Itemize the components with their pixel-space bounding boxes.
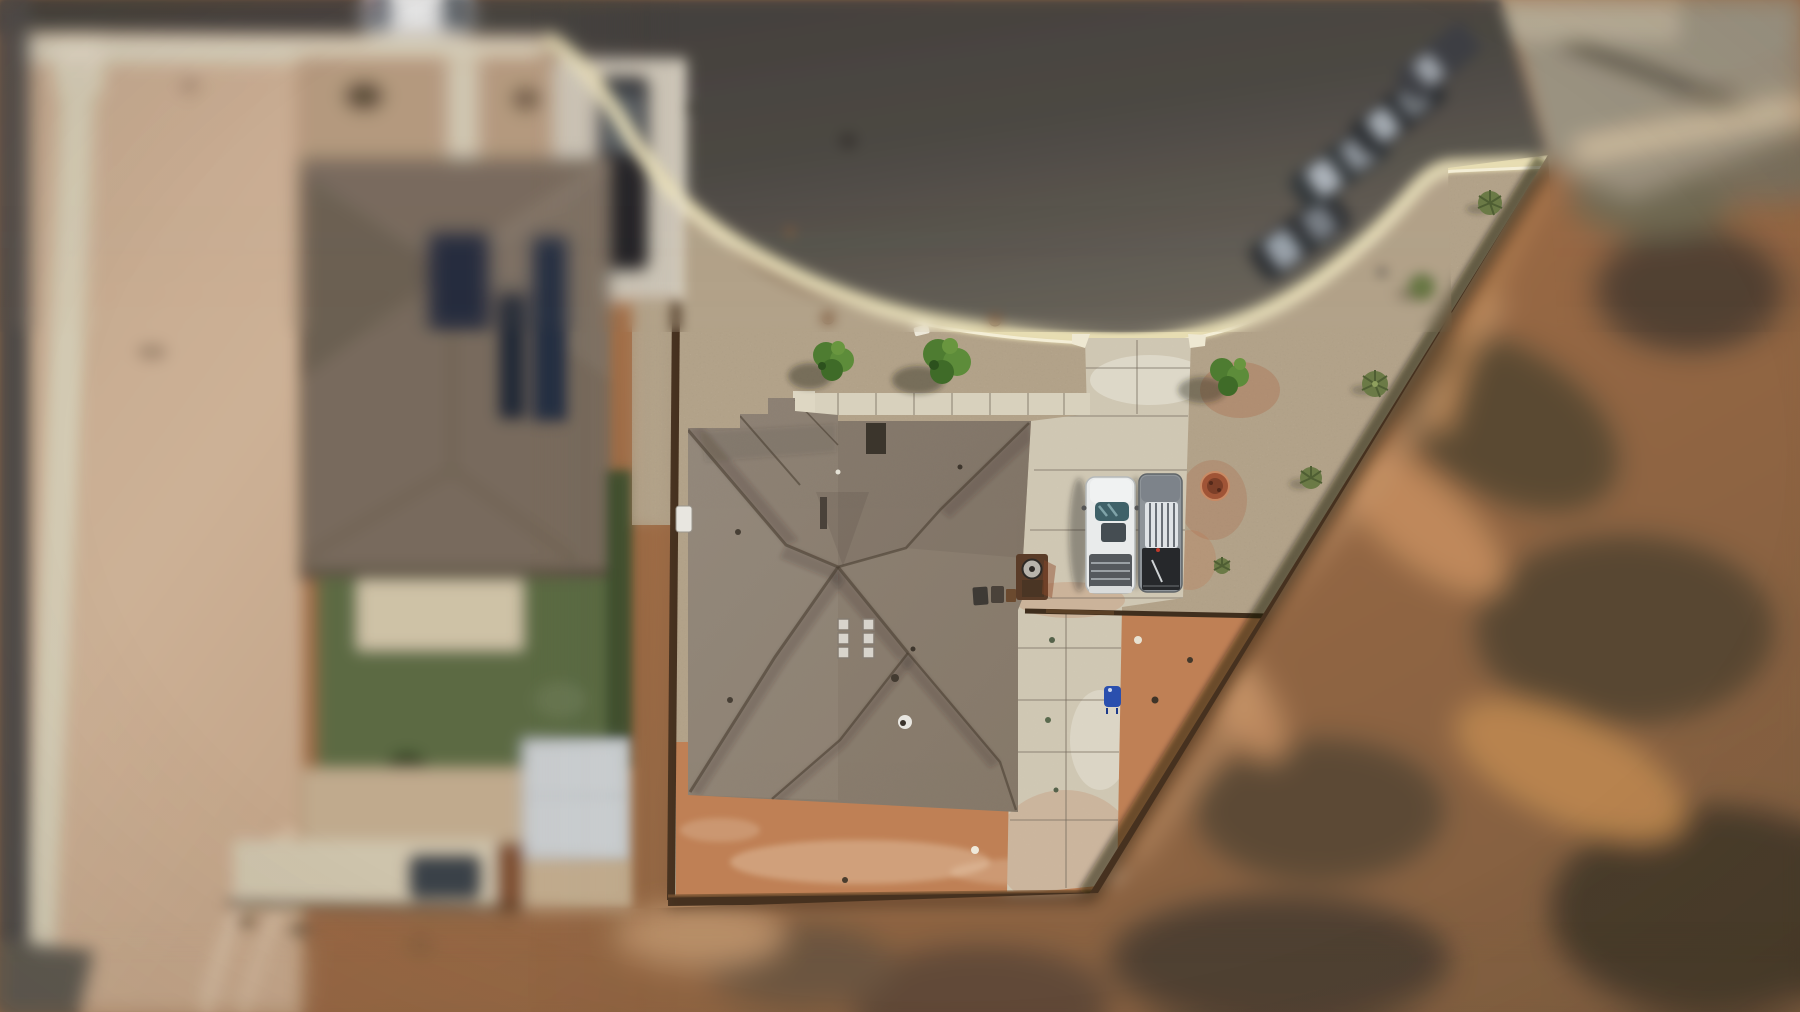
neighbor-shed bbox=[523, 740, 628, 858]
front-sidewalk bbox=[793, 391, 1090, 417]
white-truck-tailgate bbox=[1089, 586, 1132, 593]
left-road-strip bbox=[0, 0, 30, 1012]
gray-pickup-truck bbox=[1139, 474, 1182, 592]
white-truck-sunroof bbox=[1101, 523, 1126, 542]
vent-dot-3 bbox=[836, 470, 841, 475]
debris-white-2 bbox=[1134, 636, 1142, 644]
rock-3 bbox=[785, 227, 795, 237]
neighbor-patio bbox=[357, 580, 523, 650]
neighbor-front-shrub-1 bbox=[345, 83, 383, 109]
roof-slit-shadow bbox=[820, 497, 827, 529]
trash-bin-1 bbox=[972, 586, 988, 605]
rock-2 bbox=[989, 314, 1001, 326]
bottom-mark-1 bbox=[290, 925, 310, 935]
white-truck-hood bbox=[1090, 479, 1132, 503]
fire-pit-ring bbox=[1201, 472, 1229, 500]
solar-panel-2 bbox=[498, 292, 526, 420]
lot-shrub bbox=[183, 81, 197, 91]
aerial-photo bbox=[0, 0, 1800, 1012]
left-fence bbox=[671, 302, 676, 900]
rust-fence-strip bbox=[497, 843, 523, 912]
neighbor-house-roof bbox=[300, 158, 610, 580]
neighbor-front-shrub-2 bbox=[513, 89, 539, 109]
dark-dot-5 bbox=[958, 465, 963, 470]
lot-mark bbox=[137, 344, 167, 360]
debris-dark-2 bbox=[1187, 657, 1193, 663]
dark-dot-2 bbox=[911, 647, 916, 652]
hedge-strip bbox=[606, 470, 632, 750]
solar-panel-1 bbox=[428, 232, 490, 330]
debris-dark-1 bbox=[1152, 697, 1159, 704]
meter-pole bbox=[686, 104, 694, 112]
trash-bin-2 bbox=[991, 586, 1004, 603]
vehicles-driveway bbox=[1069, 474, 1182, 593]
dark-dot-3 bbox=[735, 529, 741, 535]
bottom-left-gray-patch bbox=[0, 940, 95, 1012]
neighbor-parked-car-2 bbox=[408, 854, 482, 900]
neighbor-front-dirt bbox=[298, 58, 556, 162]
main-house-roof bbox=[676, 390, 1060, 820]
bottom-mark-2 bbox=[412, 940, 428, 950]
side-utility-box bbox=[676, 506, 692, 532]
sand-streak-3 bbox=[680, 818, 760, 842]
roof-notch-shadow bbox=[866, 423, 886, 454]
pad-weed-3 bbox=[1054, 788, 1059, 793]
brown-box bbox=[1006, 589, 1016, 602]
debris-dark-3 bbox=[842, 877, 848, 883]
curb-cut-right bbox=[1188, 334, 1206, 348]
curb-pole bbox=[1379, 269, 1386, 276]
neighbor-walkway bbox=[448, 58, 478, 162]
white-pickup-truck bbox=[1082, 477, 1140, 593]
top-sidewalk bbox=[30, 33, 545, 62]
white-car-street bbox=[363, 0, 473, 34]
solar-panel-3 bbox=[532, 236, 568, 422]
debris-white-1 bbox=[971, 846, 979, 854]
white-truck-windshield bbox=[1095, 502, 1129, 521]
sand-streak-1 bbox=[730, 840, 990, 884]
dark-dot-4 bbox=[727, 697, 733, 703]
lawn-light-patch bbox=[534, 682, 586, 718]
back-gate bbox=[1046, 611, 1114, 613]
lot-debris bbox=[237, 916, 257, 928]
pad-weed-1 bbox=[1049, 637, 1055, 643]
scene-svg bbox=[0, 0, 1800, 1012]
gray-truck-bed bbox=[1142, 548, 1180, 590]
manhole-cover bbox=[839, 133, 857, 149]
bed-red-dot bbox=[1156, 548, 1160, 552]
pad-weed-2 bbox=[1045, 717, 1051, 723]
rock-1 bbox=[822, 312, 834, 324]
dark-dot-1 bbox=[891, 674, 899, 682]
gray-truck-hood bbox=[1141, 476, 1180, 502]
